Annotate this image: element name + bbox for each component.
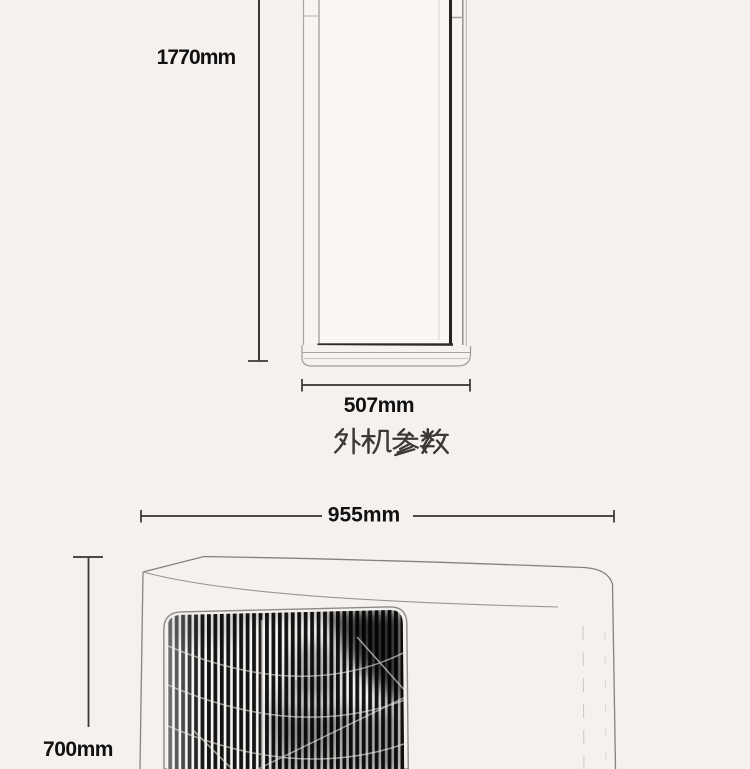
svg-text:507mm: 507mm bbox=[344, 394, 414, 417]
svg-text:955mm: 955mm bbox=[328, 504, 400, 527]
svg-text:700mm: 700mm bbox=[43, 738, 113, 761]
svg-text:1770mm: 1770mm bbox=[157, 46, 236, 69]
